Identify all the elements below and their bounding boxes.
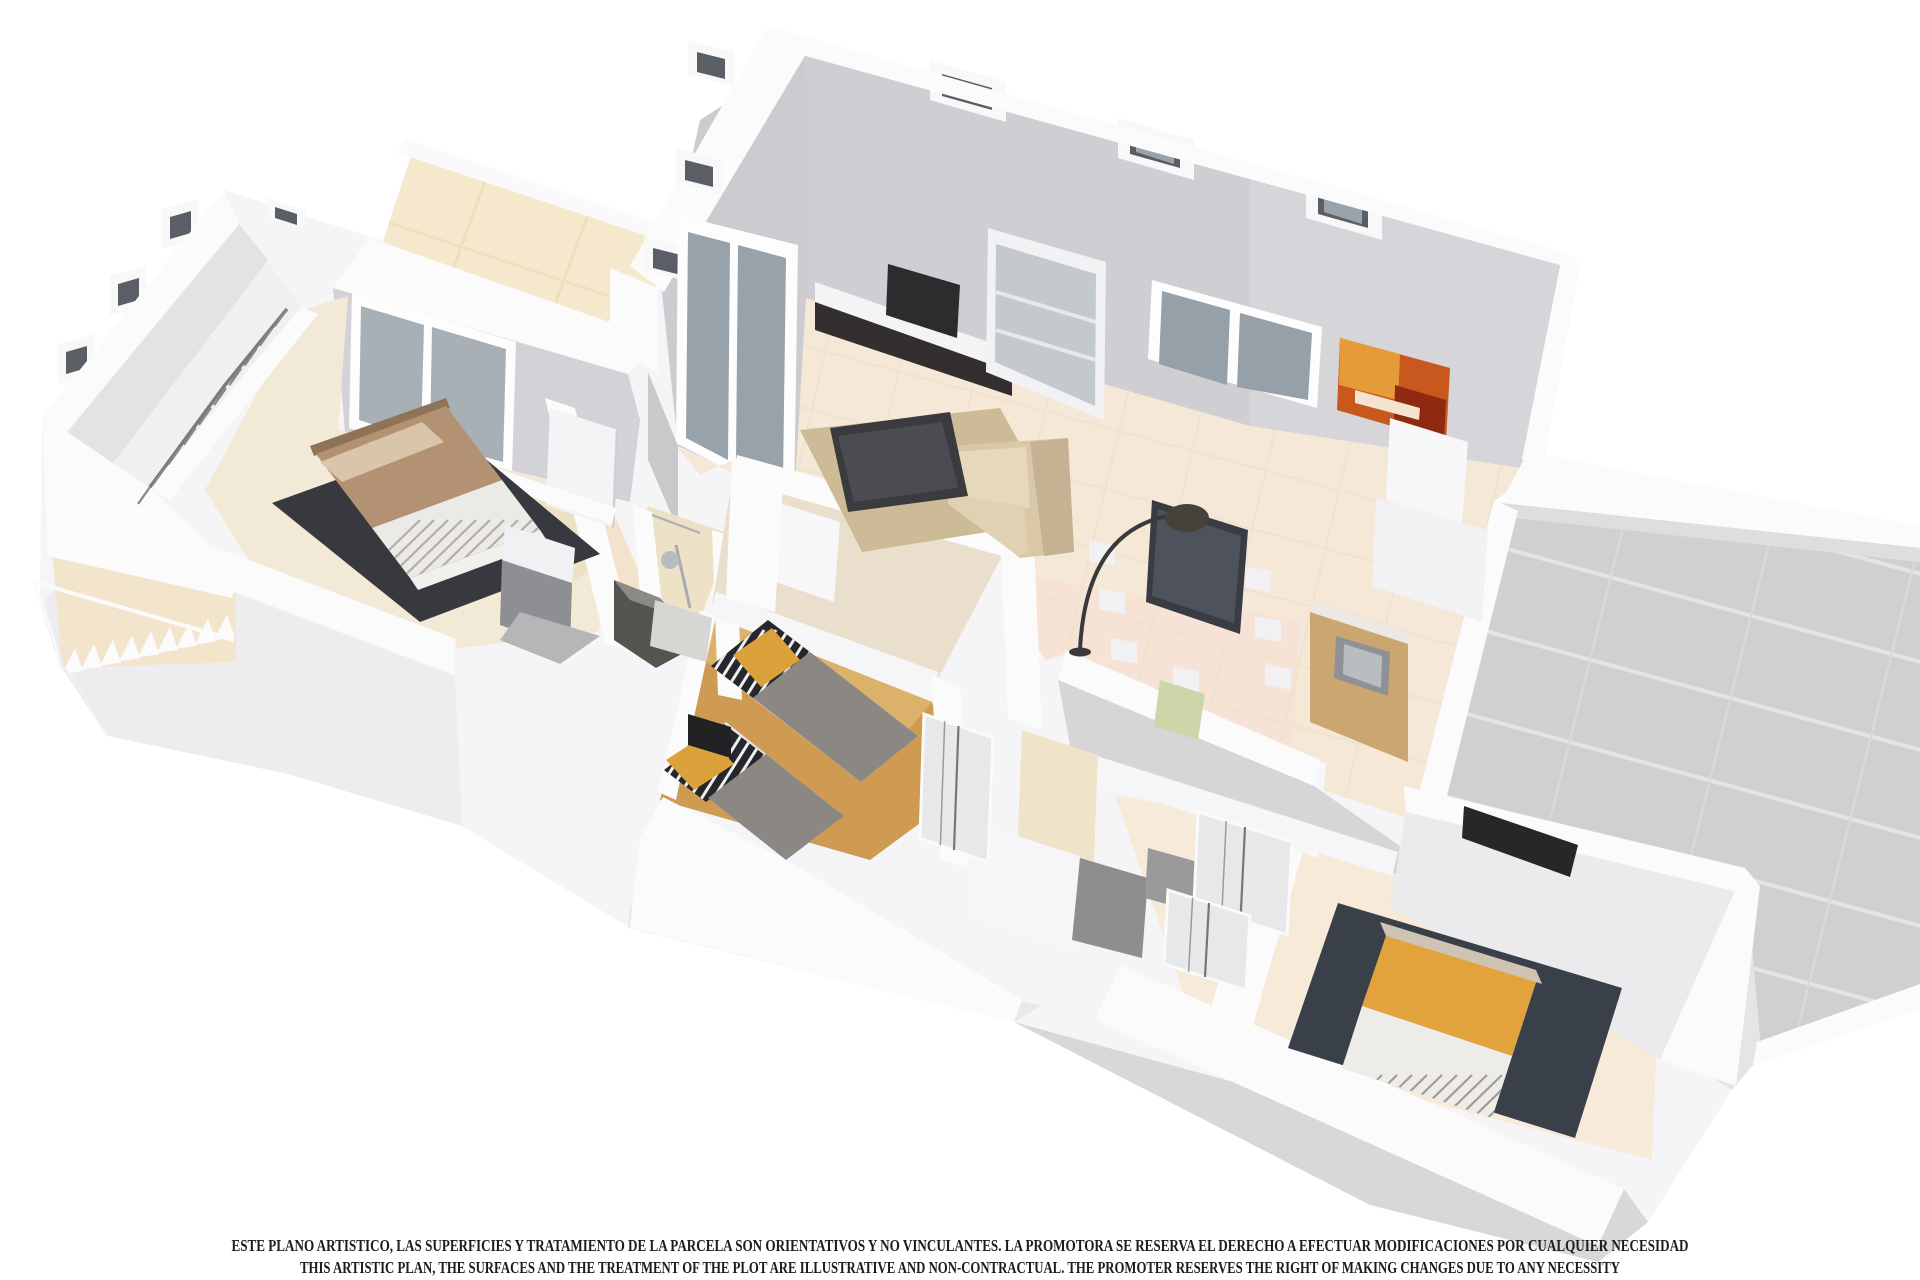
svg-text:ESTE PLANO ARTISTICO, LAS SUPE: ESTE PLANO ARTISTICO, LAS SUPERFICIES Y …: [232, 1236, 1689, 1255]
svg-text:THIS ARTISTIC PLAN, THE SURFAC: THIS ARTISTIC PLAN, THE SURFACES AND THE…: [300, 1258, 1620, 1277]
